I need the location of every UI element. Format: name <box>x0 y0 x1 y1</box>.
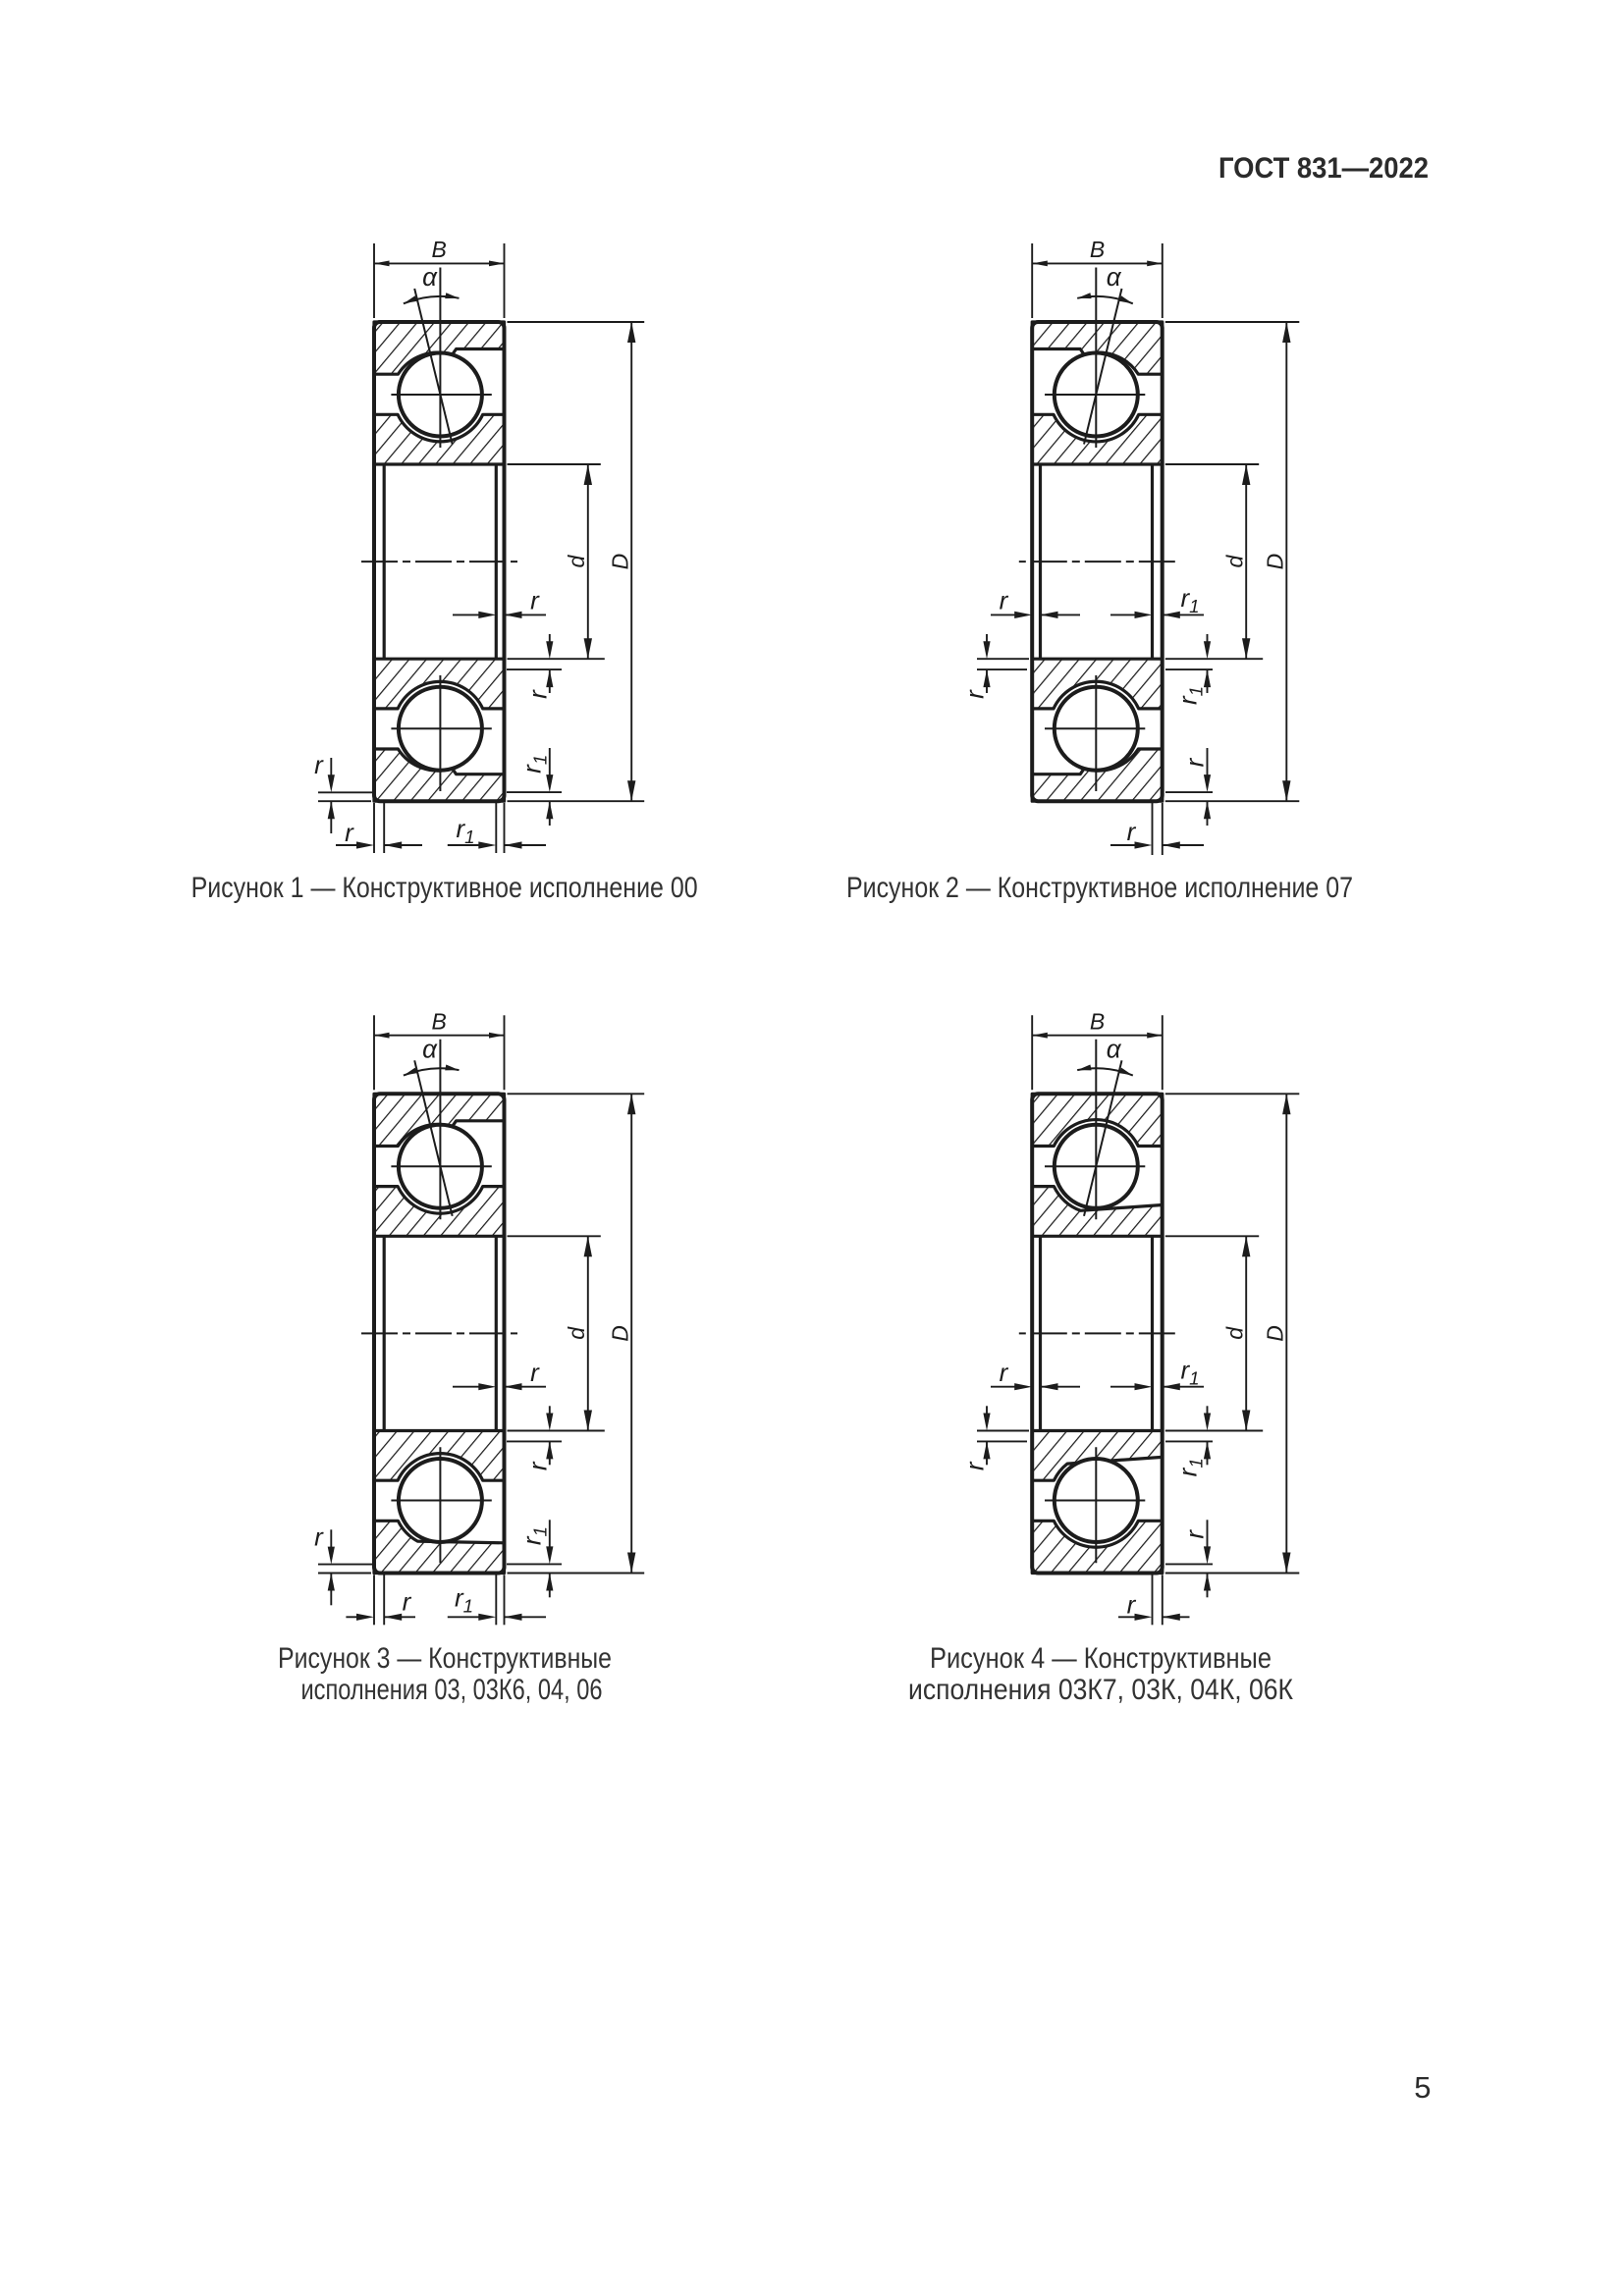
svg-text:d: d <box>1222 1326 1248 1340</box>
svg-text:r: r <box>1000 1358 1009 1387</box>
svg-text:r: r <box>1000 586 1009 615</box>
svg-text:d: d <box>1222 554 1248 567</box>
svg-text:r: r <box>314 750 324 779</box>
svg-text:исполнения 03, 03К6, 04, 06: исполнения 03, 03К6, 04, 06 <box>301 1674 603 1706</box>
svg-text:5: 5 <box>1414 2070 1431 2105</box>
svg-text:r: r <box>1127 817 1137 846</box>
svg-text:исполнения 03К7, 03К, 04К, 06К: исполнения 03К7, 03К, 04К, 06К <box>908 1674 1293 1706</box>
svg-text:r: r <box>522 1461 552 1470</box>
svg-text:D: D <box>608 554 633 570</box>
svg-text:r: r <box>314 1522 324 1551</box>
svg-text:r: r <box>960 689 990 699</box>
svg-text:B: B <box>432 1008 447 1034</box>
svg-text:α: α <box>1107 262 1122 292</box>
svg-text:α: α <box>1107 1034 1122 1063</box>
svg-text:B: B <box>1090 1008 1105 1034</box>
svg-text:D: D <box>608 1325 633 1342</box>
svg-text:Рисунок 3 — Конструктивные: Рисунок 3 — Конструктивные <box>278 1642 612 1675</box>
svg-text:B: B <box>1090 237 1105 262</box>
svg-text:Рисунок 1 — Конструктивное исп: Рисунок 1 — Конструктивное исполнение 00 <box>191 872 698 904</box>
svg-text:D: D <box>1263 1325 1288 1342</box>
svg-text:d: d <box>564 554 589 567</box>
svg-text:α: α <box>422 1034 438 1063</box>
svg-text:r: r <box>530 586 540 615</box>
svg-text:r: r <box>522 689 552 699</box>
svg-text:r: r <box>403 1586 412 1616</box>
svg-text:r: r <box>345 818 354 847</box>
svg-text:d: d <box>564 1326 589 1340</box>
svg-text:B: B <box>432 237 447 262</box>
svg-text:r: r <box>1180 1529 1210 1539</box>
svg-text:r: r <box>1180 757 1210 767</box>
svg-text:r: r <box>960 1461 990 1470</box>
svg-text:r: r <box>1127 1589 1137 1619</box>
svg-text:r: r <box>530 1358 540 1387</box>
svg-text:Рисунок 2 — Конструктивное исп: Рисунок 2 — Конструктивное исполнение 07 <box>846 872 1353 904</box>
svg-text:Рисунок 4 — Конструктивные: Рисунок 4 — Конструктивные <box>930 1642 1272 1675</box>
svg-text:D: D <box>1263 554 1288 570</box>
svg-text:α: α <box>422 262 438 292</box>
svg-text:ГОСТ 831—2022: ГОСТ 831—2022 <box>1218 152 1429 185</box>
